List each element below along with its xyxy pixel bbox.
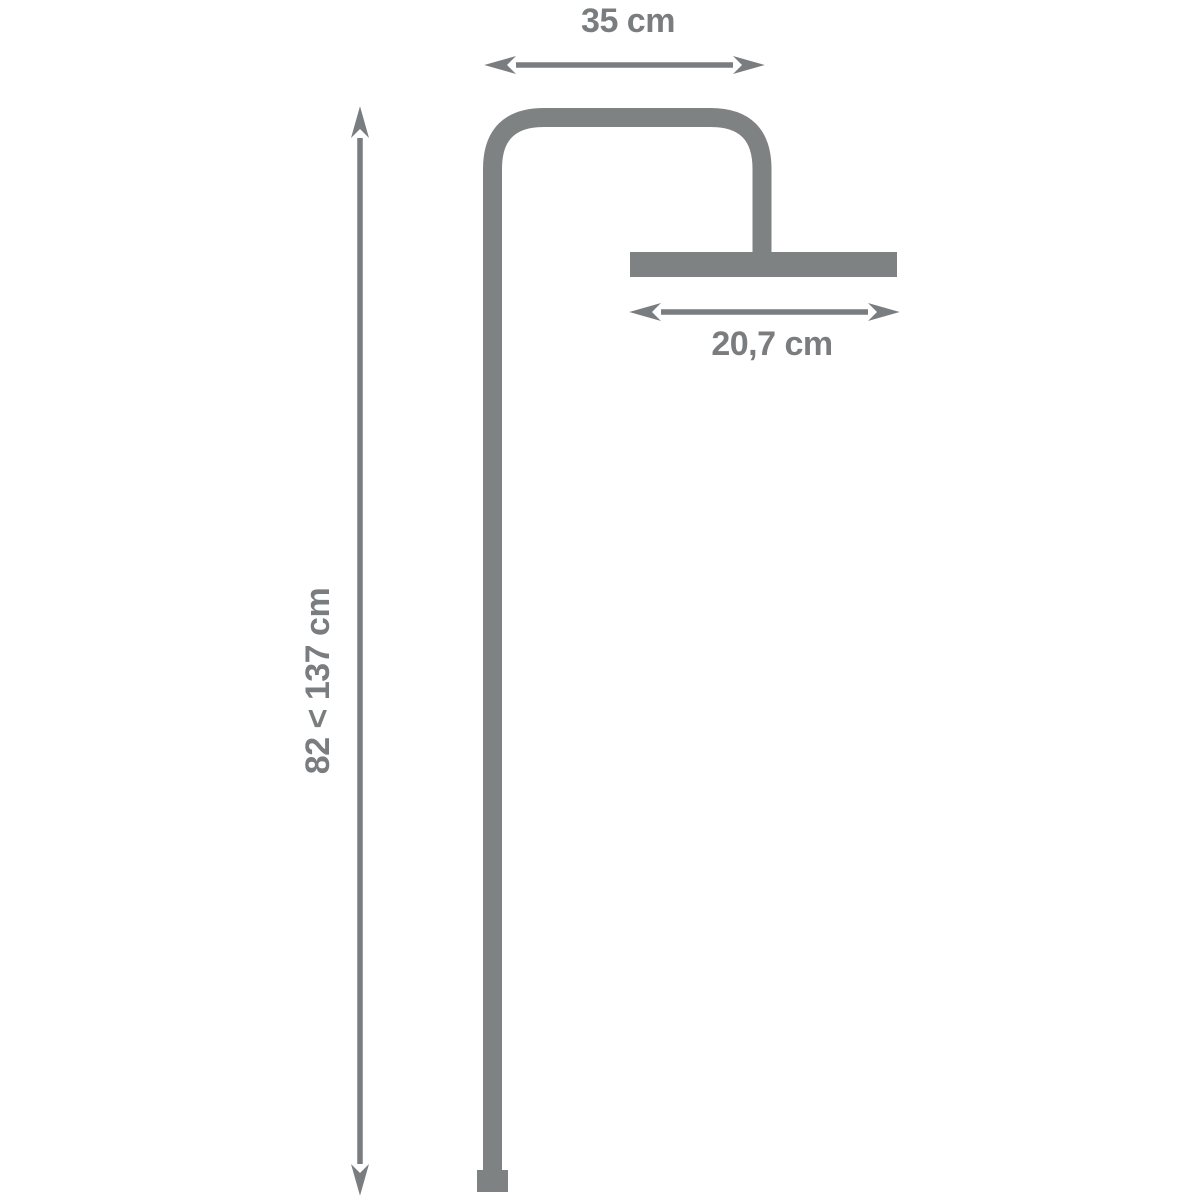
height-range-label: 82 < 137 cm: [299, 588, 337, 774]
shower-column-diagram: 35 cm 20,7 cm 82 < 137 cm: [0, 0, 1200, 1200]
shower-head-plate: [630, 252, 897, 277]
top-width-label: 35 cm: [581, 2, 675, 40]
diagram-canvas: 35 cm 20,7 cm 82 < 137 cm: [0, 0, 1200, 1200]
pipe-base-foot: [477, 1170, 508, 1192]
head-width-label: 20,7 cm: [711, 325, 832, 363]
